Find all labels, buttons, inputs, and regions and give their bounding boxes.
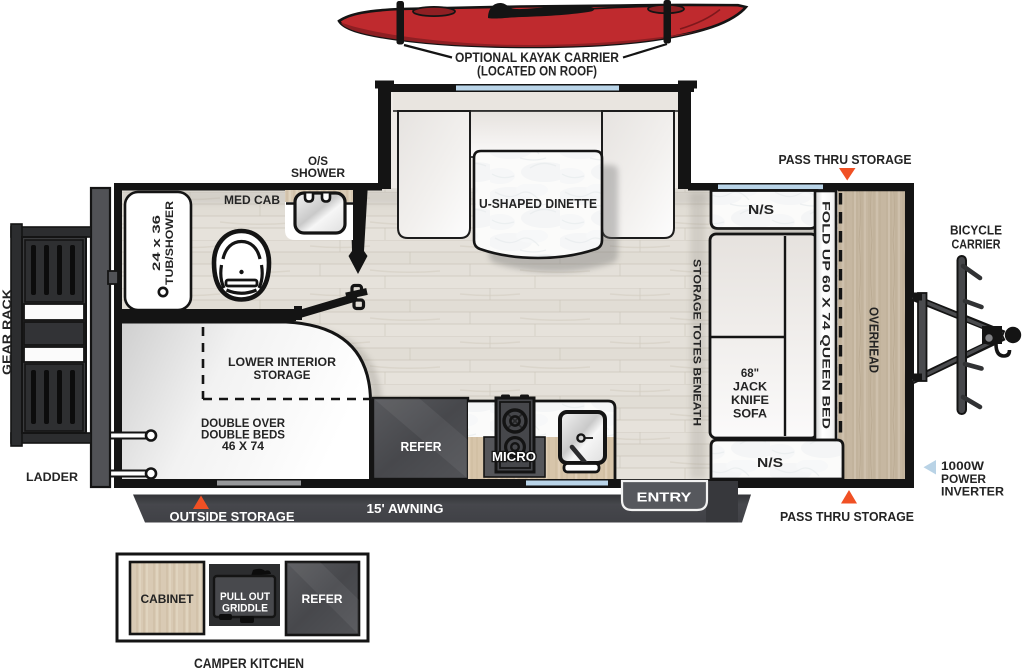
svg-text:CAMPER KITCHEN: CAMPER KITCHEN (194, 656, 304, 670)
svg-text:ENTRY: ENTRY (637, 490, 692, 505)
svg-text:(LOCATED ON ROOF): (LOCATED ON ROOF) (477, 64, 597, 79)
svg-text:DOUBLE BEDS: DOUBLE BEDS (201, 430, 285, 442)
svg-text:N/S: N/S (757, 456, 783, 470)
svg-text:MED CAB: MED CAB (224, 195, 280, 207)
svg-text:LADDER: LADDER (26, 470, 79, 484)
svg-text:46 X 74: 46 X 74 (222, 441, 265, 453)
svg-text:BICYCLE: BICYCLE (950, 223, 1002, 238)
svg-text:SHOWER: SHOWER (291, 168, 346, 180)
svg-text:REFER: REFER (302, 592, 343, 606)
svg-text:JACK: JACK (733, 382, 768, 394)
svg-text:CARRIER: CARRIER (952, 237, 1001, 252)
svg-text:O/S: O/S (308, 156, 328, 168)
svg-text:FOLD UP 60 X 74 QUEEN BED: FOLD UP 60 X 74 QUEEN BED (820, 201, 832, 430)
svg-text:REFER: REFER (401, 440, 442, 454)
svg-text:OUTSIDE STORAGE: OUTSIDE STORAGE (170, 510, 295, 524)
svg-text:LOWER INTERIOR: LOWER INTERIOR (228, 355, 336, 369)
svg-text:STORAGE: STORAGE (254, 368, 311, 382)
svg-text:INVERTER: INVERTER (941, 485, 1004, 499)
svg-text:KNIFE: KNIFE (731, 395, 769, 407)
svg-text:68": 68" (741, 368, 759, 380)
svg-text:MICRO: MICRO (492, 450, 536, 464)
svg-text:CABINET: CABINET (141, 592, 194, 606)
svg-text:PULL OUT: PULL OUT (220, 591, 270, 603)
svg-text:PASS THRU STORAGE: PASS THRU STORAGE (780, 509, 914, 524)
svg-text:N/S: N/S (748, 203, 774, 217)
svg-text:OVERHEAD: OVERHEAD (867, 307, 881, 373)
svg-text:STORAGE TOTES BENEATH: STORAGE TOTES BENEATH (691, 259, 703, 426)
svg-text:U-SHAPED DINETTE: U-SHAPED DINETTE (479, 196, 597, 211)
svg-text:GEAR RACK: GEAR RACK (0, 289, 14, 375)
svg-text:PASS THRU STORAGE: PASS THRU STORAGE (779, 152, 912, 167)
svg-text:TUB/SHOWER: TUB/SHOWER (164, 201, 176, 285)
svg-text:DOUBLE OVER: DOUBLE OVER (201, 418, 286, 430)
svg-text:SOFA: SOFA (733, 409, 767, 421)
svg-text:24 x 36: 24 x 36 (151, 215, 163, 271)
svg-text:15' AWNING: 15' AWNING (367, 502, 444, 516)
svg-text:GRIDDLE: GRIDDLE (222, 603, 268, 615)
